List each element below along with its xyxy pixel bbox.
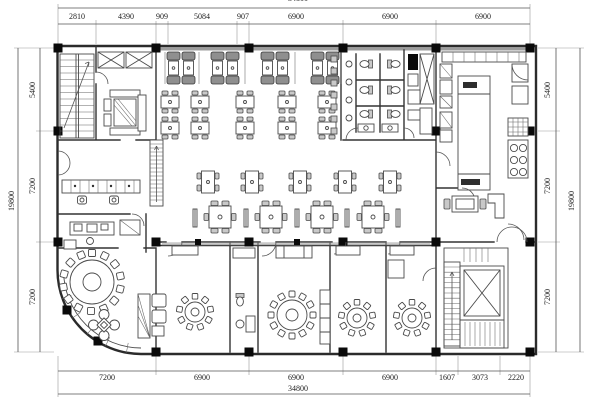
dim-bottom-seg-5: 3073: [471, 374, 489, 382]
dim-bottom-seg-2: 6900: [287, 374, 305, 382]
dim-top-seg-5: 6900: [287, 13, 305, 21]
dim-bottom-seg-1: 6900: [193, 374, 211, 382]
dim-bottom-seg-6: 2220: [507, 374, 525, 382]
restrooms: [346, 60, 400, 140]
bar-counter: [62, 180, 140, 204]
bench-chairs-restroom-wall: [331, 56, 337, 134]
private-room-3: [334, 242, 376, 336]
text-smudge: [463, 82, 477, 88]
kitchen-staff-room: [444, 194, 527, 242]
sofa-set: [138, 294, 166, 338]
private-room-2: [262, 242, 330, 344]
dim-left-seg-1: 7200: [29, 177, 37, 195]
banquet-room: [59, 250, 166, 341]
pantry-strip: [233, 248, 255, 332]
dim-top-seg-2: 909: [155, 13, 169, 21]
text-smudge: [461, 179, 480, 185]
dining-tables-top-strip: [161, 91, 336, 139]
dim-right-overall: 19800: [568, 190, 576, 212]
dim-top-seg-3: 5084: [193, 13, 211, 21]
dim-top-overall: 34800: [287, 0, 309, 3]
dim-bottom-seg-3: 6900: [381, 374, 399, 382]
cashier-office: [64, 214, 144, 249]
entrance-doors: [58, 151, 70, 175]
kitchen: [436, 52, 528, 201]
dim-left-seg-2: 7200: [29, 288, 37, 306]
floor-plan-drawing: [0, 0, 600, 400]
dim-bottom-seg-0: 7200: [98, 374, 116, 382]
dim-top-seg-0: 2810: [68, 13, 86, 21]
dim-right-seg-0: 5400: [544, 81, 552, 99]
utility-shafts: [404, 54, 434, 138]
dim-bottom-overall: 34800: [287, 385, 309, 393]
dim-bottom-seg-4: 1607: [438, 374, 456, 382]
dim-right-seg-2: 7200: [544, 288, 552, 306]
private-room-1: [168, 242, 214, 330]
dim-top-seg-4: 907: [236, 13, 250, 21]
staircase-top-left: [60, 54, 94, 138]
dim-top-seg-7: 6900: [474, 13, 492, 21]
dim-top-seg-1: 4390: [117, 13, 135, 21]
private-room-4: [388, 242, 431, 336]
dim-right-seg-1: 7200: [544, 177, 552, 195]
lounge-room-top-left: [96, 52, 152, 135]
main-dining-hall: [193, 171, 401, 233]
dim-top-seg-6: 6900: [381, 13, 399, 21]
dim-left-overall: 19800: [8, 190, 16, 212]
booth-seating-row: [165, 52, 341, 84]
dim-left-seg-0: 5400: [29, 81, 37, 99]
floor-plan-canvas: 34800 2810 4390 909 5084 907 6900 6900 6…: [0, 0, 600, 400]
service-stair: [150, 140, 163, 206]
